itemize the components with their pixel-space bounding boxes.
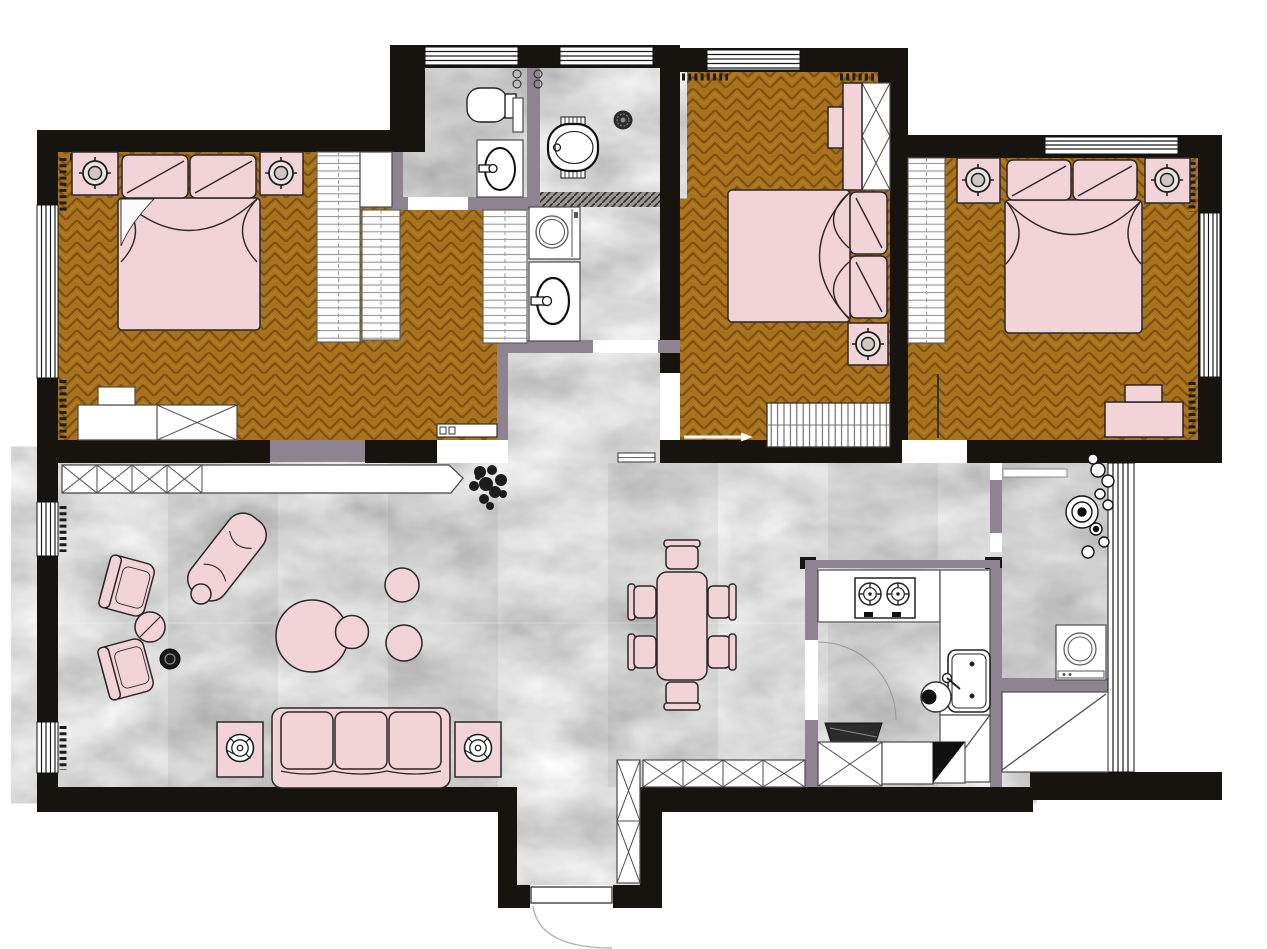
wall-shelf [513,98,523,132]
window-balcony-right [1108,463,1134,772]
range-hood [825,723,882,742]
window-bedroom3-right [1200,213,1220,377]
dining-chair-bottom [664,682,700,710]
room-laundry [529,207,580,341]
shoe-cabinet [617,760,640,883]
stool [921,682,951,712]
balcony-washer [1056,625,1106,680]
radiator [767,403,890,447]
window-wc-top [425,47,518,66]
cooktop-2-burner [855,578,915,618]
black-stool [160,649,180,669]
dining-chair-left-upper [628,584,656,620]
window-living-left-lower [37,722,58,773]
pouf-2 [386,625,422,661]
side-round-table [135,612,165,642]
window-master-left [37,205,58,378]
headboard-panel [843,83,862,190]
fridge-corner [933,742,965,783]
double-bed [1005,160,1142,333]
wardrobe-x [862,83,890,190]
small-round-table [191,584,211,604]
pouf-1 [385,568,419,602]
dining-chair-left-lower [628,634,656,670]
desk [1105,402,1183,437]
desk-shelf [1125,385,1162,402]
bedside-panel [828,107,843,148]
floor-plan-svg [0,0,1267,949]
entrance-door [531,887,612,948]
lamp-table-left [217,722,263,777]
base-cabinet [882,742,933,784]
mosaic-threshold [533,192,660,207]
washbasin [477,140,523,197]
laundry-basin [529,262,580,341]
sliding-door-bar [1003,469,1067,477]
tv-console [62,465,463,493]
storage-cabinet [1002,692,1108,772]
dining-chair-right-lower [708,634,736,670]
sofa-3-seat [272,708,450,788]
window-bedroom2-top [707,50,800,70]
window-shower-top [560,47,653,66]
dining-chair-right-upper [708,584,736,620]
sliding-door [437,424,497,437]
window-living-left-upper [37,502,58,556]
double-bed [728,190,887,322]
floor-drain [614,111,633,130]
washing-machine [529,207,580,259]
dining-table [657,572,707,680]
window-bedroom3-top [1045,137,1178,154]
coffee-table-small [336,616,369,649]
shelf-box [360,152,392,207]
floor-corridor [508,340,660,463]
dining-chair-top [664,540,700,569]
x-cabinet [818,742,882,786]
floor-plan-canvas [0,0,1267,949]
lamp-table-right [455,722,501,777]
cabinet-row [643,760,805,787]
wall-niche [618,453,655,462]
